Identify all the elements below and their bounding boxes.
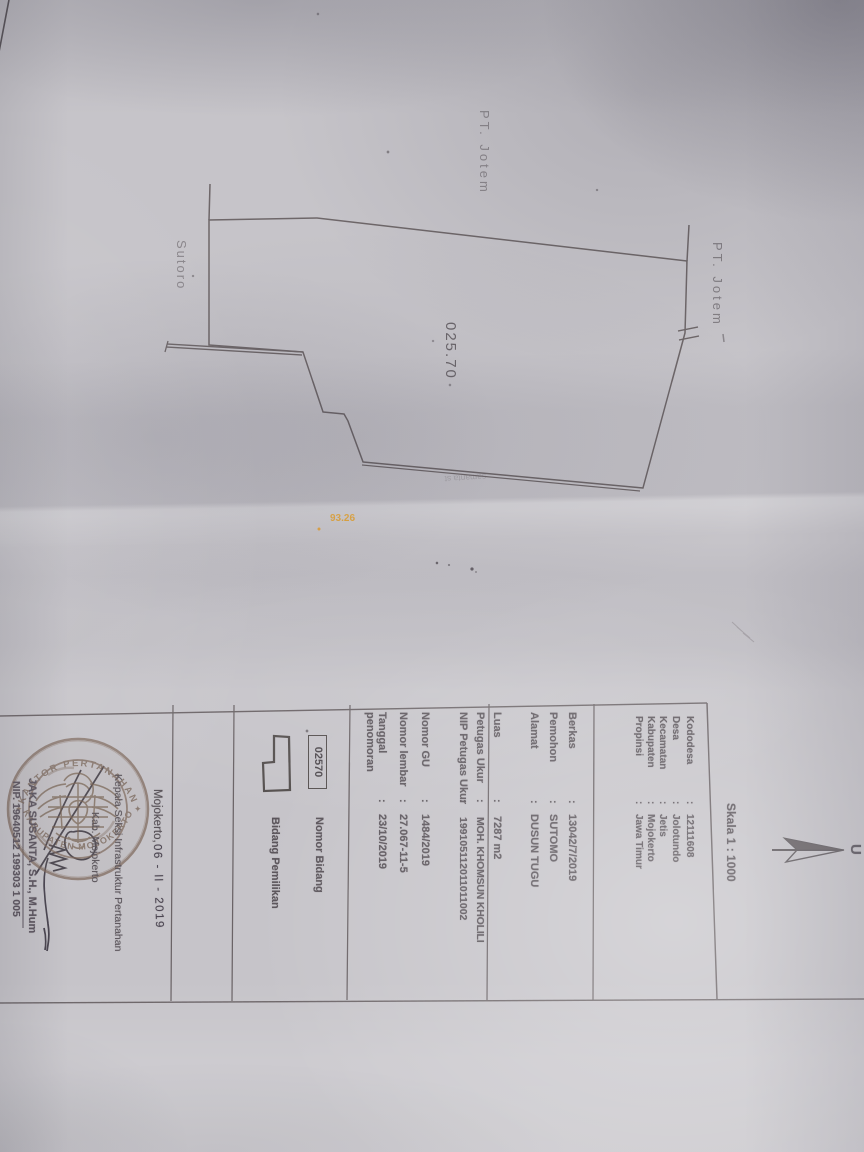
svg-text:93.26: 93.26 [330,513,355,524]
svg-text:✦: ✦ [134,804,142,814]
